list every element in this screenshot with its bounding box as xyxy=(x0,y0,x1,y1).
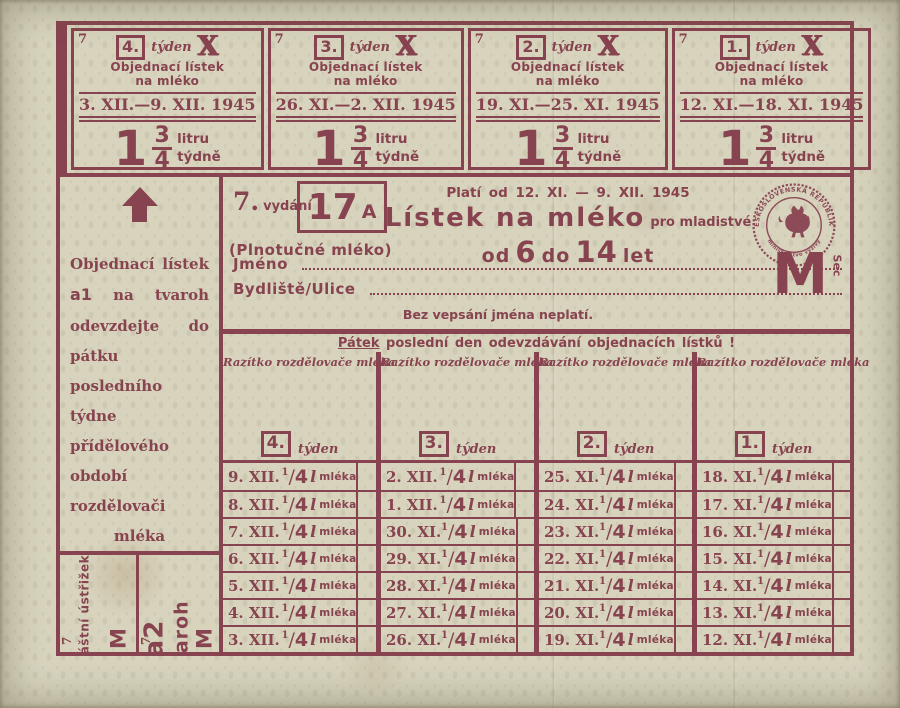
stamp-column-week-2: Razítko rozdělovače mléka 2. týden 25. X… xyxy=(539,352,697,652)
stamp-cell xyxy=(356,519,376,544)
rule xyxy=(680,118,864,122)
stub-a2: a2 tvaroh M 7 xyxy=(139,555,219,652)
table-row: 1. XII.1/4lmléka xyxy=(381,490,534,517)
card-border: Zvláštní ústřižek b1 M 7 Objednací líste… xyxy=(56,21,854,656)
table-row: 9. XII.1/4lmléka xyxy=(223,463,376,490)
name-write-line xyxy=(302,268,842,270)
corner-mark: 7 xyxy=(63,158,67,166)
card-number: 17 xyxy=(308,187,358,228)
week-label-row: 4. týden xyxy=(223,431,376,460)
corner-mark: 7 xyxy=(60,637,74,645)
coupon-date-range: 19. XI.—25. XI. 1945 xyxy=(476,92,660,118)
qty-integer: 1 xyxy=(114,129,147,170)
week-number-box: 4. xyxy=(116,35,145,60)
bottom-stubs: b2 Zvláštní ústřižek. M 7 a2 tvaroh xyxy=(60,551,219,652)
qty-unit2: týdně xyxy=(376,149,420,167)
stamp-area xyxy=(697,369,850,431)
edition-number: 7. xyxy=(233,187,259,216)
qty-integer: 1 xyxy=(514,129,547,170)
stamp-column-week-4: Razítko rozdělovače mléka 4. týden 9. XI… xyxy=(223,352,381,652)
table-row: 13. XI.1/4lmléka xyxy=(697,598,850,625)
stamp-cell xyxy=(356,573,376,598)
table-row: 15. XI.1/4lmléka xyxy=(697,544,850,571)
stamp-cell xyxy=(674,573,692,598)
table-row: 6. XII.1/4lmléka xyxy=(223,544,376,571)
up-arrow-icon xyxy=(122,187,158,223)
name-label: Jméno xyxy=(233,255,288,273)
week-word: týden xyxy=(552,40,592,55)
coupon-quantity: 1 3 4 litru týdně xyxy=(271,126,461,173)
stamp-cell xyxy=(832,519,850,544)
cross-mark: X xyxy=(198,36,219,58)
stamp-cell xyxy=(832,627,850,652)
form-note: Bez vepsání jména neplatí. xyxy=(333,307,663,322)
table-row: 19. XI.1/4lmléka xyxy=(539,625,692,652)
stamp-column-week-3: Razítko rozdělovače mléka 3. týden 2. XI… xyxy=(381,352,539,652)
qty-integer: 1 xyxy=(312,129,345,170)
table-row: 14. XI.1/4lmléka xyxy=(697,571,850,598)
stamp-cell xyxy=(516,546,534,571)
daily-ration-table: 18. XI.1/4lmléka 17. XI.1/4lmléka 16. XI… xyxy=(697,460,850,652)
stub-b2-letter: M xyxy=(107,628,131,649)
week-number-box: 1. xyxy=(720,35,749,60)
table-row: 29. XI.1/4lmléka xyxy=(381,544,534,571)
qty-unit1: litru xyxy=(578,131,622,149)
table-row: 20. XI.1/4lmléka xyxy=(539,598,692,625)
qty-unit1: litru xyxy=(376,131,420,149)
stamp-column-week-1: Razítko rozdělovače mléka 1. týden 18. X… xyxy=(697,352,850,652)
coupon-week-1: 7 1. týden X Objednací lístek na mléko 1… xyxy=(672,28,872,170)
stamp-columns: Razítko rozdělovače mléka 4. týden 9. XI… xyxy=(223,352,850,652)
coupon-line2: na mléko xyxy=(74,75,261,89)
table-row: 24. XI.1/4lmléka xyxy=(539,490,692,517)
qty-unit1: litru xyxy=(781,131,825,149)
qty-denominator: 4 xyxy=(555,151,570,172)
corner-mark: 7 xyxy=(139,637,153,645)
stamp-cell xyxy=(516,573,534,598)
stamp-cell xyxy=(356,600,376,625)
table-row: 16. XI.1/4lmléka xyxy=(697,517,850,544)
stamp-area xyxy=(539,369,692,431)
table-row: 8. XII.1/4lmléka xyxy=(223,490,376,517)
cross-mark: X xyxy=(396,36,417,58)
coupon-quantity: 1 3 4 litru týdně xyxy=(471,126,665,173)
stamp-cell xyxy=(674,519,692,544)
cross-mark: X xyxy=(598,36,619,58)
stamp-cell xyxy=(516,519,534,544)
address-write-line xyxy=(370,293,842,295)
lion-emblem xyxy=(779,206,810,238)
rule xyxy=(476,118,660,122)
week-label-row: 2. týden xyxy=(539,431,692,460)
corner-mark: 7 xyxy=(679,32,688,47)
qty-numerator: 3 xyxy=(555,126,570,147)
qty-denominator: 4 xyxy=(759,151,774,172)
corner-mark: 7 xyxy=(275,32,284,47)
table-row: 18. XI.1/4lmléka xyxy=(697,463,850,490)
right-main: 7.vydání 17 A (Plnotučné mléko) Platí od… xyxy=(223,177,850,652)
stub-a1-rotated-text: Objednací lístek na a1 tvaroh M xyxy=(66,27,68,171)
stamp-cell xyxy=(674,627,692,652)
qty-numerator: 3 xyxy=(759,126,774,147)
week-label-row: 3. týden xyxy=(381,431,534,460)
coupon-line2: na mléko xyxy=(675,75,869,89)
week-number-box: 3. xyxy=(314,35,343,60)
daily-ration-table: 25. XI.1/4lmléka 24. XI.1/4lmléka 23. XI… xyxy=(539,460,692,652)
qty-numerator: 3 xyxy=(154,126,169,147)
coupon-line1: Objednací lístek xyxy=(74,61,261,75)
corner-mark: 7 xyxy=(475,32,484,47)
stamp-cell xyxy=(674,546,692,571)
stamp-cell xyxy=(832,492,850,517)
stamp-cell xyxy=(356,627,376,652)
table-row: 28. XI.1/4lmléka xyxy=(381,571,534,598)
qty-denominator: 4 xyxy=(353,151,368,172)
table-row: 2. XII.1/4lmléka xyxy=(381,463,534,490)
name-field: Jméno xyxy=(233,255,842,273)
table-row: 21. XI.1/4lmléka xyxy=(539,571,692,598)
stamp-column-label: Razítko rozdělovače mléka xyxy=(697,352,850,369)
coupon-quantity: 1 3 4 litru týdně xyxy=(675,126,869,173)
coupon-line1: Objednací lístek xyxy=(271,61,461,75)
address-field: Bydliště/Ulice xyxy=(233,280,842,298)
stamp-cell xyxy=(514,463,534,490)
qty-unit1: litru xyxy=(177,131,221,149)
main-band: Objednací lístek a1 na tvaroh odevzdejte… xyxy=(60,177,850,652)
stamp-cell xyxy=(514,492,534,517)
ration-card-scan: Zvláštní ústřižek b1 M 7 Objednací líste… xyxy=(0,0,900,708)
stub-b2: b2 Zvláštní ústřižek. M 7 xyxy=(60,555,139,652)
stamp-column-label: Razítko rozdělovače mléka xyxy=(539,352,692,369)
table-row: 4. XII.1/4lmléka xyxy=(223,598,376,625)
validity-line: Platí od 12. XI. — 9. XII. 1945 xyxy=(373,185,763,201)
qty-denominator: 4 xyxy=(154,151,169,172)
stamp-cell xyxy=(516,627,534,652)
rule xyxy=(79,118,256,122)
coupon-date-range: 26. XI.—2. XII. 1945 xyxy=(276,92,456,118)
corner-mark: 7 xyxy=(78,32,87,47)
table-row: 30. XI.1/4lmléka xyxy=(381,517,534,544)
address-label: Bydliště/Ulice xyxy=(233,280,356,298)
table-row: 27. XI.1/4lmléka xyxy=(381,598,534,625)
stub-b2-label: Zvláštní ústřižek. xyxy=(78,555,92,652)
coupon-date-range: 3. XII.—9. XII. 1945 xyxy=(79,92,256,118)
coupon-week-4: 7 4. týden X Objednací lístek na mléko 3… xyxy=(71,28,264,170)
qty-unit2: týdně xyxy=(781,149,825,167)
page-title: Lístek na mléko pro mladistvé xyxy=(353,203,783,233)
card-header: 7.vydání 17 A (Plnotučné mléko) Platí od… xyxy=(223,177,850,329)
table-row: 3. XII.1/4lmléka xyxy=(223,625,376,652)
qty-unit2: týdně xyxy=(578,149,622,167)
table-row: 12. XI.1/4lmléka xyxy=(697,625,850,652)
table-row: 17. XI.1/4lmléka xyxy=(697,490,850,517)
week-word: týden xyxy=(756,40,796,55)
stamp-cell xyxy=(832,600,850,625)
stub-code-reference: a1 xyxy=(70,285,92,304)
stamp-cell xyxy=(356,492,376,517)
week-word: týden xyxy=(151,40,191,55)
coupon-line2: na mléko xyxy=(271,75,461,89)
stamp-column-label: Razítko rozdělovače mléka xyxy=(381,352,534,369)
coupon-week-2: 7 2. týden X Objednací lístek na mléko 1… xyxy=(468,28,668,170)
stamp-cell xyxy=(832,463,850,490)
stamp-cell xyxy=(674,463,692,490)
left-column: Objednací lístek a1 na tvaroh odevzdejte… xyxy=(60,177,223,652)
table-row: 5. XII.1/4lmléka xyxy=(223,571,376,598)
coupon-line2: na mléko xyxy=(471,75,665,89)
week-number-box: 2. xyxy=(516,35,545,60)
cross-mark: X xyxy=(802,36,823,58)
weekly-coupons: 7 4. týden X Objednací lístek na mléko 3… xyxy=(67,25,875,173)
stamp-cell xyxy=(356,463,376,490)
coupon-week-3: 7 3. týden X Objednací lístek na mléko 2… xyxy=(268,28,464,170)
stamp-area xyxy=(223,369,376,431)
stub-a2-letter: M xyxy=(192,628,216,649)
table-row: 25. XI.1/4lmléka xyxy=(539,463,692,490)
left-instruction-text: Objednací lístek a1 na tvaroh odevzdejte… xyxy=(70,249,209,551)
rule xyxy=(276,118,456,122)
stamp-cell xyxy=(832,546,850,571)
week-label-row: 1. týden xyxy=(697,431,850,460)
table-row: 23. XI.1/4lmléka xyxy=(539,517,692,544)
stamp-cell xyxy=(674,600,692,625)
coupon-line1: Objednací lístek xyxy=(471,61,665,75)
table-row: 7. XII.1/4lmléka xyxy=(223,517,376,544)
deadline-note: Pátek poslední den odevzdávání objednací… xyxy=(223,334,850,352)
daily-ration-table: 9. XII.1/4lmléka 8. XII.1/4lmléka 7. XII… xyxy=(223,460,376,652)
stub-a2-product: tvaroh xyxy=(170,600,192,652)
stamp-cell xyxy=(832,573,850,598)
left-instruction-cell: Objednací lístek a1 na tvaroh odevzdejte… xyxy=(60,177,219,551)
qty-numerator: 3 xyxy=(353,126,368,147)
stamp-area xyxy=(381,369,534,431)
table-row: 22. XI.1/4lmléka xyxy=(539,544,692,571)
stamp-cell xyxy=(356,546,376,571)
table-row: 26. XI.1/4lmléka xyxy=(381,625,534,652)
stamp-cell xyxy=(516,600,534,625)
stamp-cell xyxy=(674,492,692,517)
qty-integer: 1 xyxy=(718,129,751,170)
top-band: Zvláštní ústřižek b1 M 7 Objednací líste… xyxy=(60,25,850,177)
coupon-date-range: 12. XI.—18. XI. 1945 xyxy=(680,92,864,118)
coupon-quantity: 1 3 4 litru týdně xyxy=(74,126,261,173)
daily-ration-table: 2. XII.1/4lmléka 1. XII.1/4lmléka 30. XI… xyxy=(381,460,534,652)
stamp-column-label: Razítko rozdělovače mléka xyxy=(223,352,376,369)
week-word: týden xyxy=(350,40,390,55)
stub-a1: Objednací lístek na a1 tvaroh M 7 xyxy=(63,25,67,173)
qty-unit2: týdně xyxy=(177,149,221,167)
coupon-line1: Objednací lístek xyxy=(675,61,869,75)
